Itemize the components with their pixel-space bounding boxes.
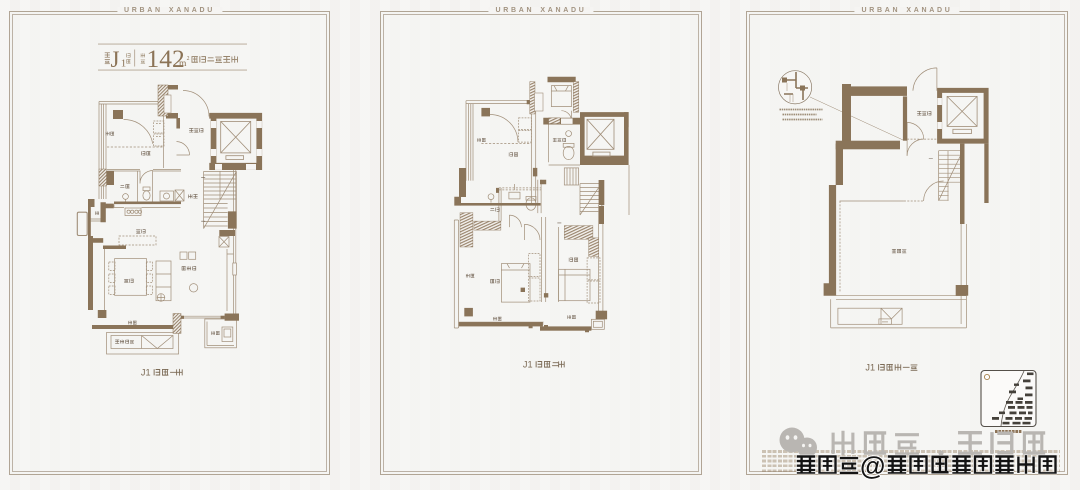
svg-text:2: 2 bbox=[187, 56, 190, 62]
svg-text:J1: J1 bbox=[523, 360, 533, 370]
svg-text:1: 1 bbox=[121, 58, 127, 70]
svg-text:@: @ bbox=[860, 451, 885, 481]
svg-text:J: J bbox=[111, 47, 120, 72]
svg-text:J1: J1 bbox=[141, 368, 151, 378]
svg-text:J1: J1 bbox=[865, 363, 875, 373]
